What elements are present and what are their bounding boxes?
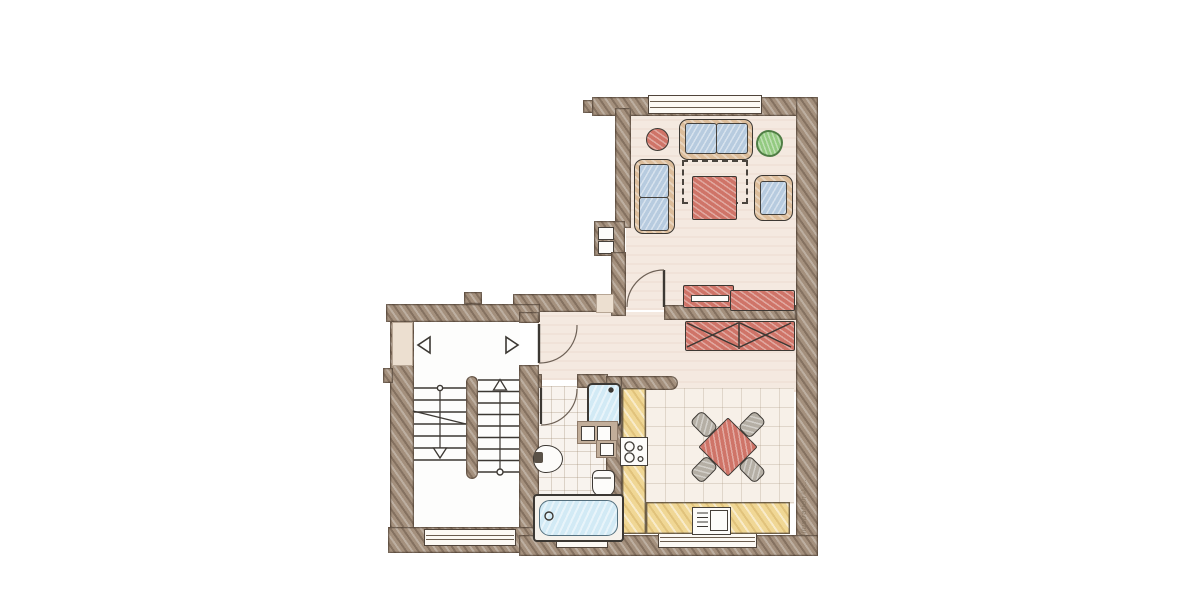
cooktop [620,437,648,466]
sofa-left-cushion-bottom [639,197,669,231]
washer-1 [581,426,595,441]
tv [691,295,729,302]
wall-living-left-upper [615,108,631,228]
wall-stairwell-right-upper [519,312,539,323]
round-pouf [646,128,669,151]
wall-light-segment [596,294,614,313]
floor-plan-canvas: Illustration©… [0,0,1200,600]
watermark-text: Illustration©… [799,452,808,536]
kitchen-sink-basin [710,510,728,531]
cabinet [600,443,614,456]
sofa-top-cushion-right [716,123,748,154]
bath-sink [592,470,615,497]
wall-stairwell-top [386,304,540,322]
plant [756,130,783,157]
stairs-divider-wall [466,376,478,479]
wall-left-stub [383,368,393,383]
chimney-flue-1 [598,227,614,240]
neighbor-door [392,322,413,366]
wall-stairwell-top-stub [464,292,482,304]
wardrobe [685,321,795,351]
coffee-table [692,176,737,220]
bathtub-inner [539,500,618,536]
sofa-top-cushion-left [685,123,717,154]
bathtub [533,494,624,542]
sideboard-low [730,290,795,311]
stairwell-window [424,529,516,546]
wall-bath-top-left-stub [538,374,542,388]
toilet-flush [534,452,543,463]
washer-2 [597,426,611,441]
armchair-cushion [760,181,787,215]
sofa-left-cushion-top [639,164,669,198]
living-room-window [648,95,762,114]
